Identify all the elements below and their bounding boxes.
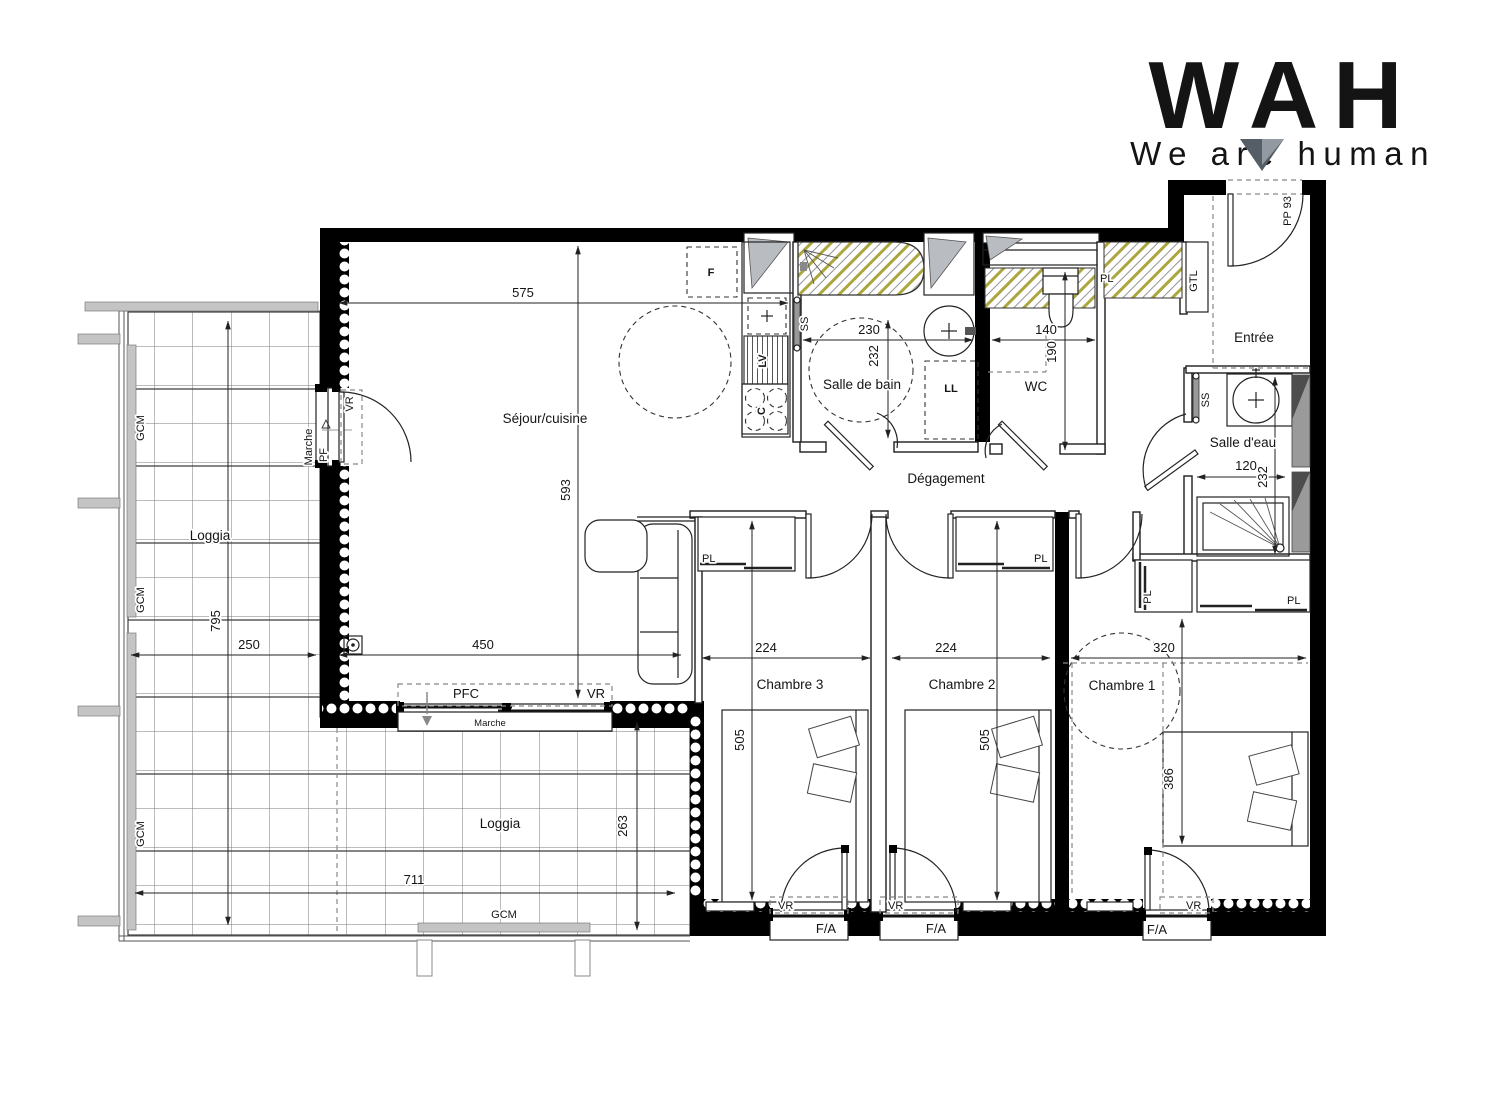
label-fridge: F <box>708 267 715 279</box>
loggia-tab-1 <box>417 940 432 976</box>
radiator-ch2 <box>963 902 1011 911</box>
floor-plan-page: WAH We are human <box>0 0 1504 1100</box>
label-vr-ch2: VR <box>888 900 903 912</box>
vr-box-pfc <box>398 684 612 706</box>
label-dishwasher: LV <box>757 354 769 368</box>
label-fa-ch2: F/A <box>926 921 947 936</box>
dim-795: 795 <box>208 610 223 632</box>
washing-machine <box>925 361 978 439</box>
dim-190: 190 <box>1044 341 1059 363</box>
label-pl-ch1-left: PL <box>1142 590 1154 603</box>
label-marche-loggia: Marche <box>474 718 506 729</box>
label-gcm-1: GCM <box>135 415 147 441</box>
dim-250: 250 <box>238 637 260 652</box>
divider-stub-2 <box>78 498 120 508</box>
dim-232-bain: 232 <box>866 345 881 367</box>
dining-table <box>619 306 731 418</box>
window-casement-kitchen <box>748 238 788 288</box>
dim-575: 575 <box>512 285 534 300</box>
label-room-degagement: Dégagement <box>907 471 985 486</box>
label-gcm-2: GCM <box>135 587 147 613</box>
towel-rail-eau <box>1193 376 1199 420</box>
label-gtl: GTL <box>1188 270 1200 291</box>
label-vr-ch3: VR <box>778 900 793 912</box>
divider-stub-3 <box>78 706 120 716</box>
label-room-eau: Salle d'eau <box>1210 435 1276 450</box>
label-room-loggia-left: Loggia <box>190 528 231 543</box>
dim-224-ch3: 224 <box>755 640 777 655</box>
label-room-ch3: Chambre 3 <box>757 677 824 692</box>
label-gcm-3: GCM <box>135 821 147 847</box>
radiator-ch3 <box>706 902 754 911</box>
window-casement-bath <box>928 238 966 288</box>
label-pfc: PFC <box>453 686 479 701</box>
loggia-top-ledge <box>85 302 318 311</box>
loggia-rail-strip-1 <box>127 345 136 617</box>
loggia-rail-strip-2 <box>127 633 136 930</box>
dim-140: 140 <box>1035 322 1057 337</box>
label-pl-ch1-right: PL <box>1287 595 1300 607</box>
dim-320: 320 <box>1153 640 1175 655</box>
logo: WAH We are human <box>1130 42 1436 172</box>
dim-505-ch2: 505 <box>977 729 992 751</box>
dim-386: 386 <box>1161 768 1176 790</box>
label-vr-ch1: VR <box>1186 900 1201 912</box>
label-marche-sejour: Marche <box>303 429 315 466</box>
label-room-entree: Entrée <box>1234 330 1274 345</box>
label-cooktop: C <box>756 407 768 415</box>
sofa-horizontal <box>585 520 647 572</box>
divider-stub-1 <box>78 334 120 344</box>
label-room-ch1: Chambre 1 <box>1089 678 1156 693</box>
bathtub <box>798 242 924 295</box>
dim-711: 711 <box>404 872 425 887</box>
loggia-areas <box>78 302 690 976</box>
bed-ch1 <box>1163 732 1308 846</box>
label-vr-sejour: VR <box>344 396 356 411</box>
label-pl-ch2: PL <box>1034 553 1047 565</box>
dim-450: 450 <box>472 637 494 652</box>
label-pl-entree: PL <box>1100 273 1113 285</box>
dim-230: 230 <box>858 322 880 337</box>
dim-593: 593 <box>558 479 573 501</box>
dim-263: 263 <box>615 815 630 837</box>
divider-stub-4 <box>78 916 120 926</box>
window-casement-wc <box>986 236 1022 260</box>
label-ss-eau: SS <box>1200 393 1212 408</box>
label-gcm-bottom: GCM <box>491 909 517 921</box>
logo-tagline: We are human <box>1130 135 1436 172</box>
label-fa-ch1: F/A <box>1147 922 1168 937</box>
hatch-zones <box>985 242 1182 308</box>
toilet-tank <box>1043 268 1078 294</box>
label-pl-ch3: PL <box>702 553 715 565</box>
label-pf: PF <box>318 448 330 462</box>
label-pp93: PP 93 <box>1282 196 1294 226</box>
loggia-tab-2 <box>575 940 590 976</box>
logo-title: WAH <box>1149 42 1418 149</box>
label-vr-pfc: VR <box>587 686 605 701</box>
label-room-loggia-bottom: Loggia <box>480 816 521 831</box>
floor-plan-svg: WAH We are human <box>0 0 1504 1100</box>
label-washing-machine: LL <box>944 383 958 395</box>
label-ss-bain: SS <box>799 317 811 332</box>
loggia-sill <box>418 923 590 932</box>
dim-232-eau: 232 <box>1255 466 1270 488</box>
label-room-sejour: Séjour/cuisine <box>503 411 588 426</box>
dim-505-ch3: 505 <box>732 729 747 751</box>
label-room-bain: Salle de bain <box>823 377 901 392</box>
radiator-ch1 <box>1087 902 1133 911</box>
dim-120: 120 <box>1235 458 1257 473</box>
label-fa-ch3: F/A <box>816 921 837 936</box>
label-room-wc: WC <box>1025 379 1048 394</box>
label-room-ch2: Chambre 2 <box>929 677 996 692</box>
dim-224-ch2: 224 <box>935 640 957 655</box>
